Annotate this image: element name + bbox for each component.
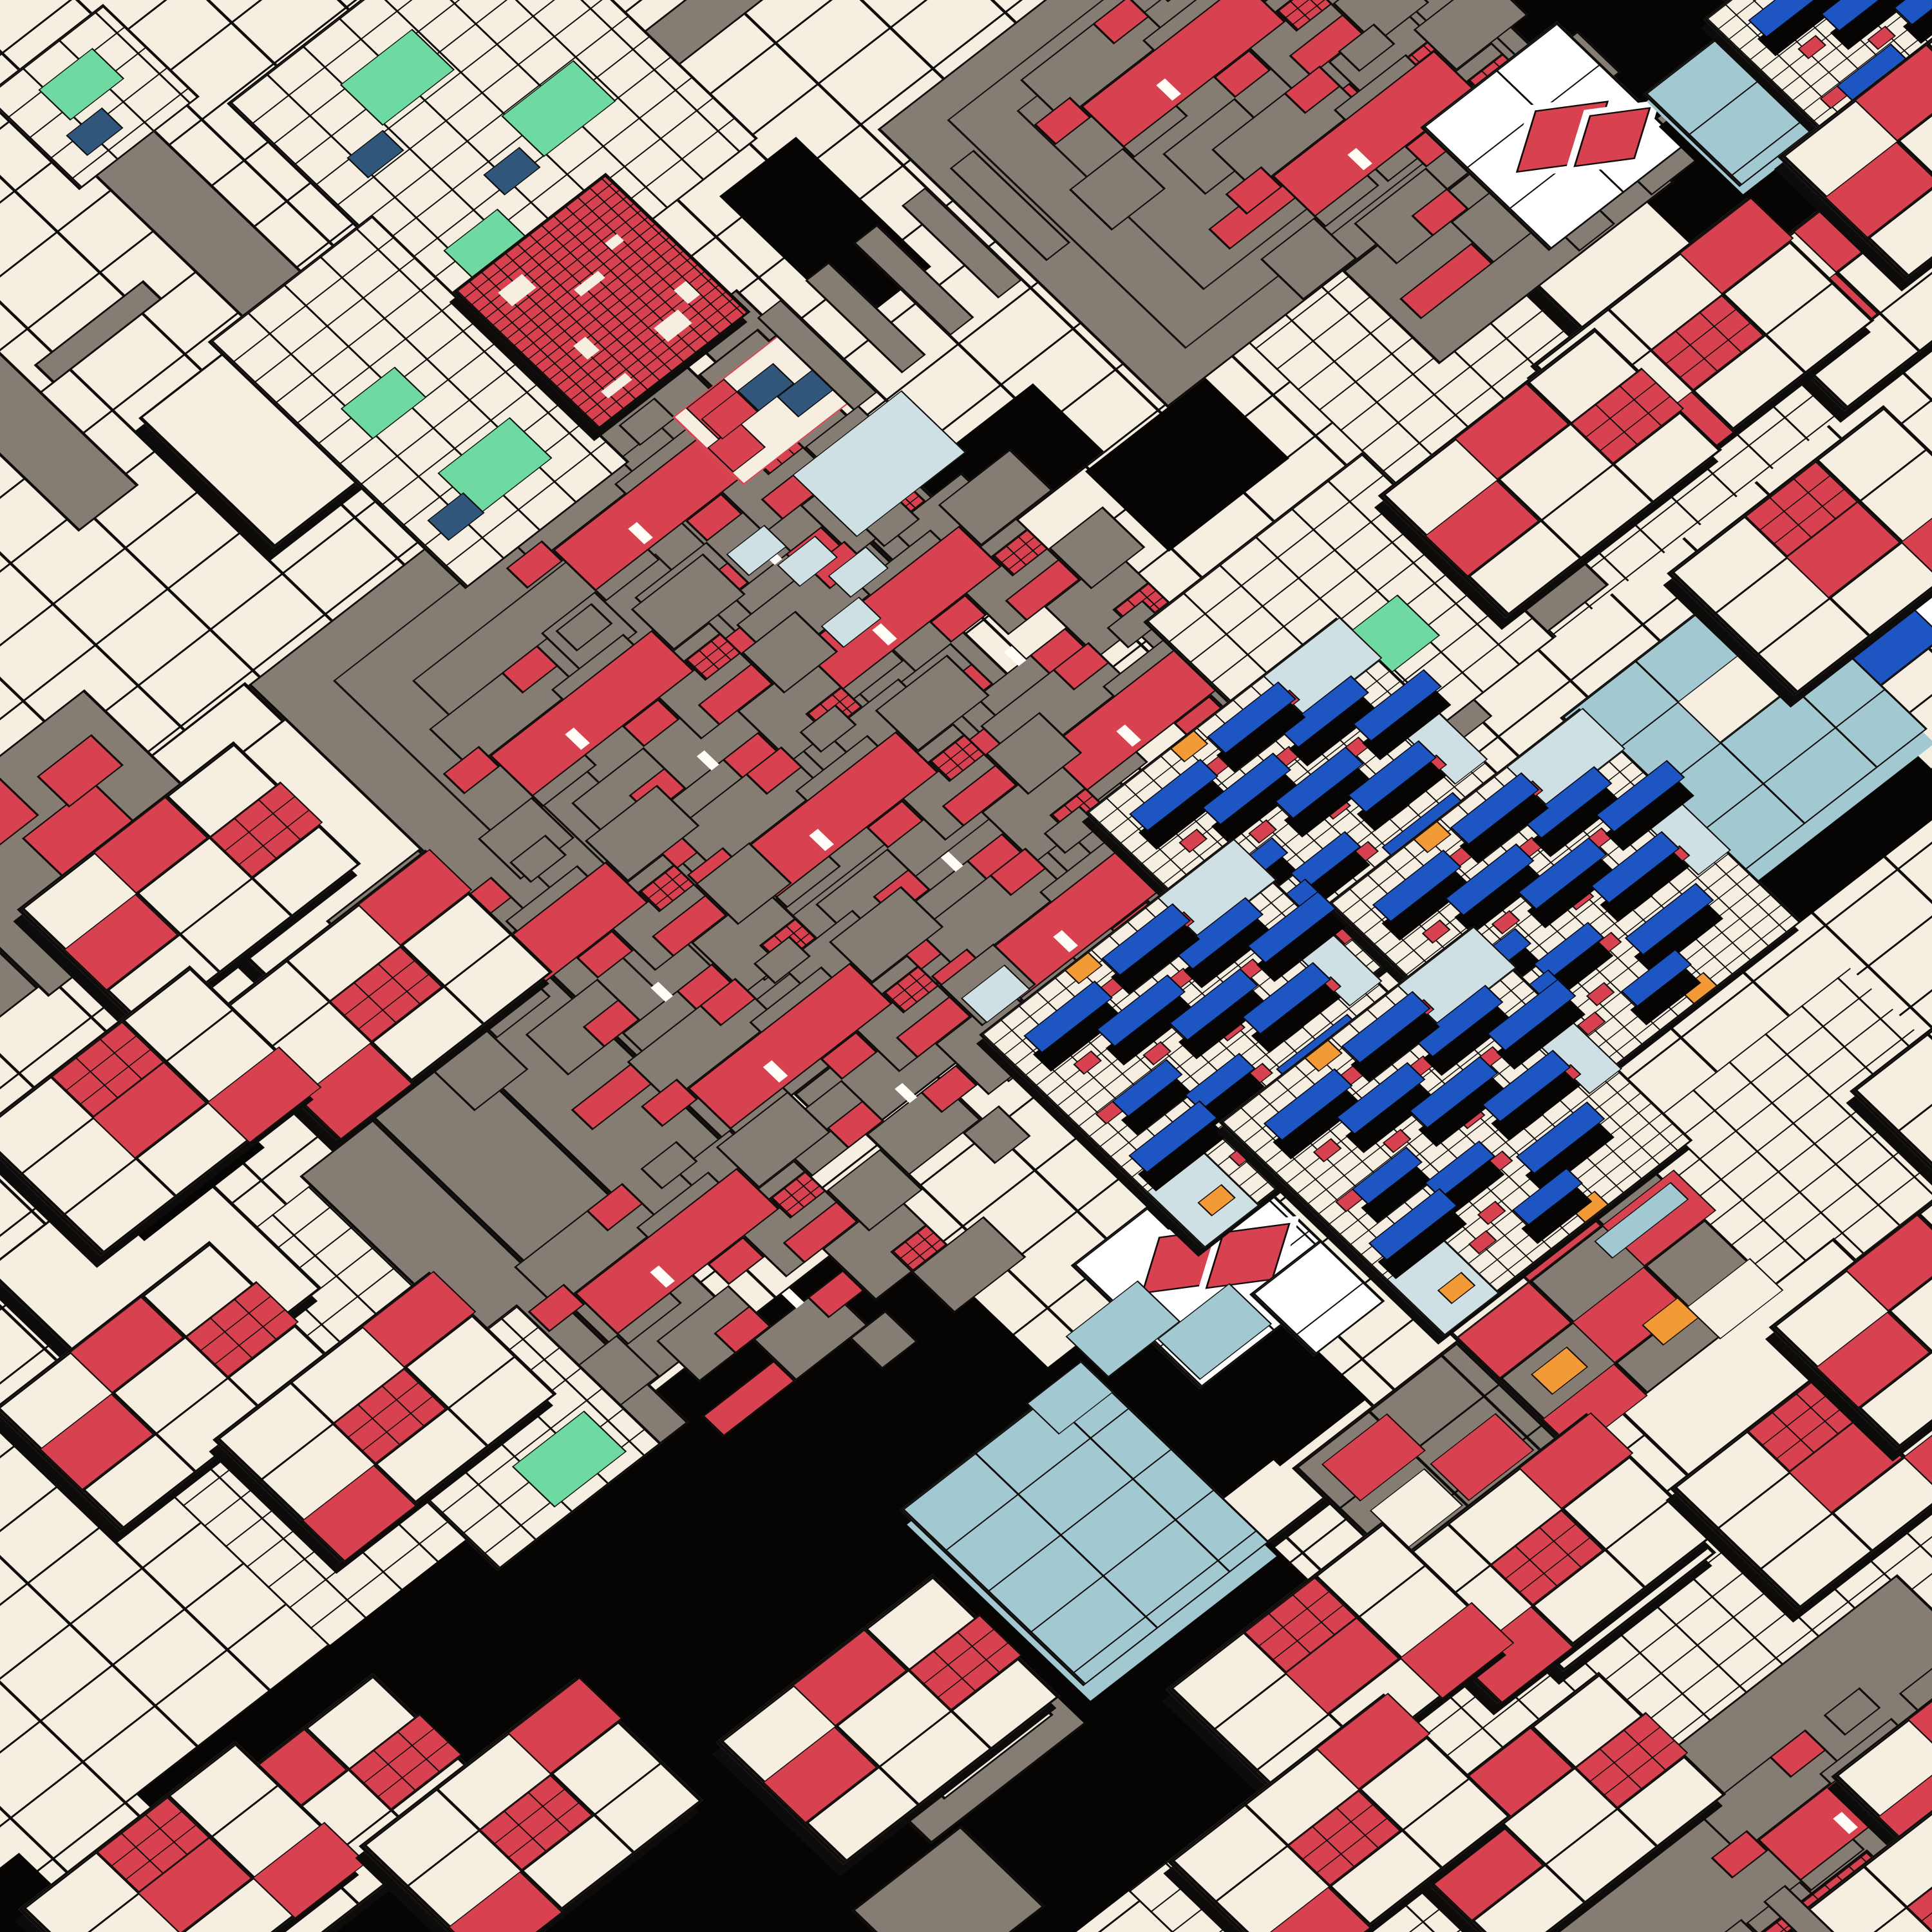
navy-cell bbox=[346, 130, 404, 178]
motif-red-cell bbox=[1256, 1887, 1371, 1932]
motif-red-cell bbox=[1900, 486, 1932, 583]
checker-hole bbox=[654, 310, 692, 342]
cluster-red-speck bbox=[1422, 920, 1451, 944]
blue-box bbox=[1621, 949, 1692, 1007]
blue-box bbox=[1893, 0, 1932, 25]
cluster-red-speck bbox=[1322, 795, 1351, 820]
cluster-red-speck bbox=[1073, 1050, 1102, 1075]
motif-red-minigrid bbox=[1286, 1790, 1401, 1886]
cluster-red-speck bbox=[1217, 1018, 1245, 1042]
checker-hole bbox=[574, 271, 605, 297]
blue-box bbox=[1023, 981, 1113, 1054]
blue-box bbox=[1372, 849, 1462, 922]
blue-box bbox=[1533, 922, 1604, 980]
checker-hole bbox=[601, 373, 632, 399]
cluster-red-speck bbox=[1275, 1016, 1304, 1041]
cluster-red-speck bbox=[1586, 982, 1615, 1007]
generative-isometric-artwork bbox=[0, 0, 1932, 1932]
blue-box bbox=[1512, 1168, 1583, 1226]
cluster-red-speck bbox=[1797, 35, 1826, 59]
mint-cell bbox=[341, 366, 427, 439]
cluster-red-speck bbox=[1566, 886, 1595, 911]
motif-red-minigrid bbox=[478, 1774, 592, 1871]
mint-cell bbox=[501, 60, 616, 156]
blue-box bbox=[1129, 759, 1218, 831]
checker-hole bbox=[573, 337, 600, 360]
cluster-red-speck bbox=[1468, 1230, 1497, 1255]
cluster-red-speck bbox=[1381, 795, 1410, 819]
cluster-red-speck bbox=[1179, 829, 1207, 853]
motif-red-minigrid bbox=[1489, 1509, 1604, 1605]
cluster-red-speck bbox=[1477, 1201, 1506, 1226]
motif-red-minigrid bbox=[332, 1368, 446, 1464]
cluster-red-speck bbox=[1457, 1105, 1486, 1130]
blue-box bbox=[1290, 831, 1361, 889]
navy-cell bbox=[483, 147, 540, 195]
motif-red-minigrid bbox=[328, 946, 442, 1043]
motif-red-cell bbox=[448, 1871, 563, 1932]
cluster-red-speck bbox=[1624, 885, 1653, 910]
blue-box bbox=[1264, 1068, 1352, 1141]
blue-box bbox=[1112, 1059, 1182, 1117]
motif-red-minigrid bbox=[1649, 294, 1764, 391]
checker-hole bbox=[674, 281, 700, 304]
blue-box bbox=[1352, 1147, 1423, 1205]
checker-hole bbox=[498, 274, 536, 306]
cluster-red-speck bbox=[1313, 1138, 1342, 1162]
mint-cell bbox=[38, 48, 124, 120]
maze-orange-cell bbox=[1531, 1347, 1588, 1395]
mint-cell bbox=[340, 29, 455, 126]
checker-hole bbox=[605, 234, 624, 250]
motif-red-minigrid bbox=[1905, 1851, 1932, 1932]
blue-box bbox=[1425, 1141, 1495, 1198]
cluster-red-speck bbox=[1515, 1104, 1544, 1129]
